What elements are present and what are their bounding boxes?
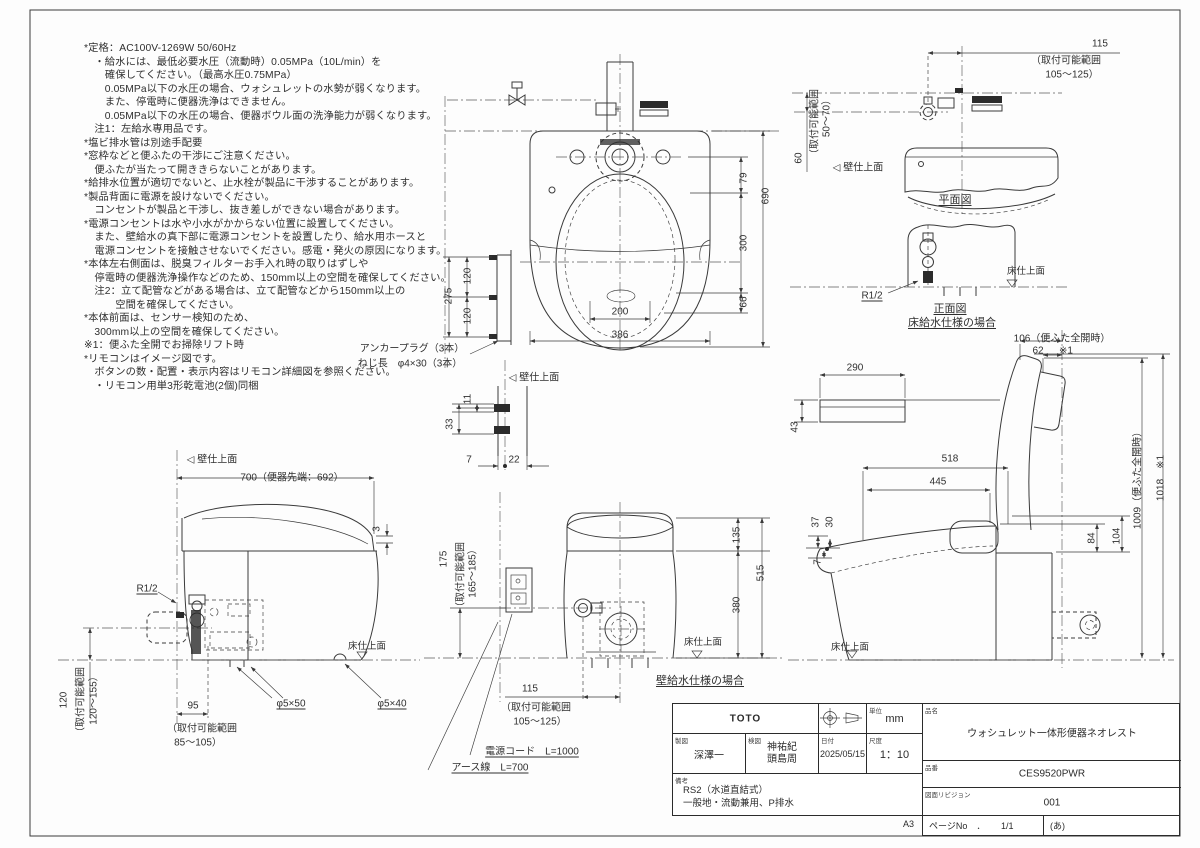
dim-label: 120 <box>463 308 474 325</box>
dim-label: ◁ 壁仕上面 <box>509 369 559 384</box>
checker-name-1: 神祐紀 <box>746 742 818 754</box>
dim-label: 79 <box>739 172 750 183</box>
dim-label: 105～125） <box>513 713 566 728</box>
dim-label: （取付可能範囲 <box>501 699 571 714</box>
dim-label: 105～125） <box>1045 66 1098 81</box>
dim-label: 床仕上面 <box>348 638 386 652</box>
dim-label: 515 <box>756 565 767 582</box>
dim-label: アース線 L=700 <box>452 759 529 774</box>
page-label: ページNo ． <box>929 816 985 835</box>
dim-label: ◁ 壁仕上面 <box>833 159 883 174</box>
sheet: { "doc": {"type_note": "TOTO installatio… <box>0 0 1200 848</box>
dim-label: 床仕上面 <box>831 639 869 653</box>
dim-label: 37 <box>811 516 822 527</box>
dim-label: 700（便器先端：692） <box>240 469 343 484</box>
dim-label: 1009（便ふた全開時） <box>1129 427 1144 529</box>
dim-label: 30 <box>825 516 836 527</box>
product-name: ウォシュレット一体形便器ネオレスト <box>923 725 1181 740</box>
date-value: 2025/05/15 <box>819 749 866 759</box>
paper-size: A3 <box>880 819 914 829</box>
dim-label: 290 <box>847 363 864 374</box>
page-value: 1/1 <box>1001 816 1014 835</box>
dim-label: 115 <box>522 684 538 695</box>
date-label: 日付 <box>821 735 834 745</box>
dim-label: 386 <box>612 330 629 341</box>
remarks-line-2: 一般地・流動兼用、P排水 <box>683 797 794 810</box>
dim-label: φ5×50 <box>276 699 305 710</box>
dim-label: R1/2 <box>136 584 157 595</box>
dim-label: 床仕上面 <box>684 634 722 648</box>
title-block: TOTO 単位 mm 製図 深澤一 検図 神祐紀 頭島周 日付 2025/05/… <box>672 703 1180 816</box>
dim-label: 平面図 <box>939 191 972 207</box>
dim-label: 60 <box>794 152 805 163</box>
dim-label: 104 <box>1112 528 1123 545</box>
dim-label: R1/2 <box>861 291 882 302</box>
dim-label: 135 <box>732 527 743 544</box>
dim-label: 120 <box>59 692 70 709</box>
dim-label: 106（便ふた全開時） <box>1014 330 1111 345</box>
dim-label: 床仕上面 <box>1007 263 1045 277</box>
dim-label: 7 <box>466 455 472 466</box>
dim-label: ※1 <box>1059 346 1073 357</box>
dim-label: 165～185） <box>464 544 479 597</box>
dim-label: （取付可能範囲 <box>167 720 237 735</box>
remarks-cell: 備考 RS2（水道直結式） 一般地・流動兼用、P排水 <box>673 774 923 817</box>
dim-label: 床給水仕様の場合 <box>908 314 996 330</box>
title-block-brand-cell: TOTO <box>673 704 819 734</box>
dim-label: 120～155） <box>85 671 100 724</box>
scale-cell: 尺度 1：10 <box>867 734 923 774</box>
dim-label: ◁ 壁仕上面 <box>187 451 237 466</box>
dim-label: 85～105） <box>174 734 222 749</box>
dim-label: 3 <box>372 526 383 532</box>
remarks-line-1: RS2（水道直結式） <box>683 784 794 797</box>
date-cell: 日付 2025/05/15 <box>819 734 867 774</box>
dim-label: 電源コード L=1000 <box>485 743 579 758</box>
scale-value: 1：10 <box>867 746 922 762</box>
part-number: CES9520PWR <box>923 769 1181 780</box>
dim-label: 518 <box>942 454 959 465</box>
product-name-label: 品名 <box>925 705 938 715</box>
product-name-cell: 品名 ウォシュレット一体形便器ネオレスト <box>923 704 1181 761</box>
dim-label: 62 <box>1032 346 1043 357</box>
dim-label: 66 <box>739 296 750 307</box>
dim-label: 壁給水仕様の場合 <box>656 672 744 688</box>
dim-label: 175 <box>439 551 450 568</box>
projection-symbol-cell <box>819 704 867 734</box>
dim-label: 200 <box>612 307 629 318</box>
dim-label: φ5×40 <box>377 699 406 710</box>
unit-cell: 単位 mm <box>867 704 923 734</box>
checker-cell: 検図 神祐紀 頭島周 <box>746 734 819 774</box>
dim-label: 120 <box>463 268 474 285</box>
brand-logo: TOTO <box>673 713 818 724</box>
dim-label: 115 <box>1092 39 1108 50</box>
third-angle-projection-icon <box>819 704 865 732</box>
dim-label: 275 <box>444 288 455 305</box>
dim-label: 43 <box>790 421 801 432</box>
dim-label: （取付可能範囲 <box>1031 52 1101 67</box>
dim-label: 50～70） <box>818 95 833 137</box>
dim-label: 445 <box>930 477 947 488</box>
page-revision-mark: (あ) <box>1043 816 1179 835</box>
revision-cell: 図面リビジョン 001 <box>923 788 1181 817</box>
dim-label: 7 <box>813 559 824 565</box>
drafter-label: 製図 <box>675 735 688 745</box>
unit-value: mm <box>867 713 922 725</box>
dim-label: アンカープラグ（3本） <box>360 340 465 355</box>
dim-label: ねじ長 φ4×30（3本） <box>358 355 463 370</box>
dim-label: 33 <box>445 418 456 429</box>
dim-label: 11 <box>463 394 474 404</box>
dim-label: 1018 ※1 <box>1152 455 1167 501</box>
checker-name-2: 頭島周 <box>746 754 818 766</box>
revision-value: 001 <box>923 797 1181 808</box>
scale-label: 尺度 <box>869 735 882 745</box>
drafter-cell: 製図 深澤一 <box>673 734 746 774</box>
dim-label: 22 <box>508 455 519 466</box>
dim-label: 95 <box>187 701 198 712</box>
dim-label: 300 <box>739 235 750 252</box>
dim-label: 690 <box>761 188 772 205</box>
dim-label: 84 <box>1087 532 1098 543</box>
drafter-name: 深澤一 <box>673 746 745 761</box>
part-number-cell: 品番 CES9520PWR <box>923 761 1181 788</box>
page-row: ページNo ． 1/1 (あ) <box>922 816 1180 836</box>
dim-label: 380 <box>732 597 743 614</box>
